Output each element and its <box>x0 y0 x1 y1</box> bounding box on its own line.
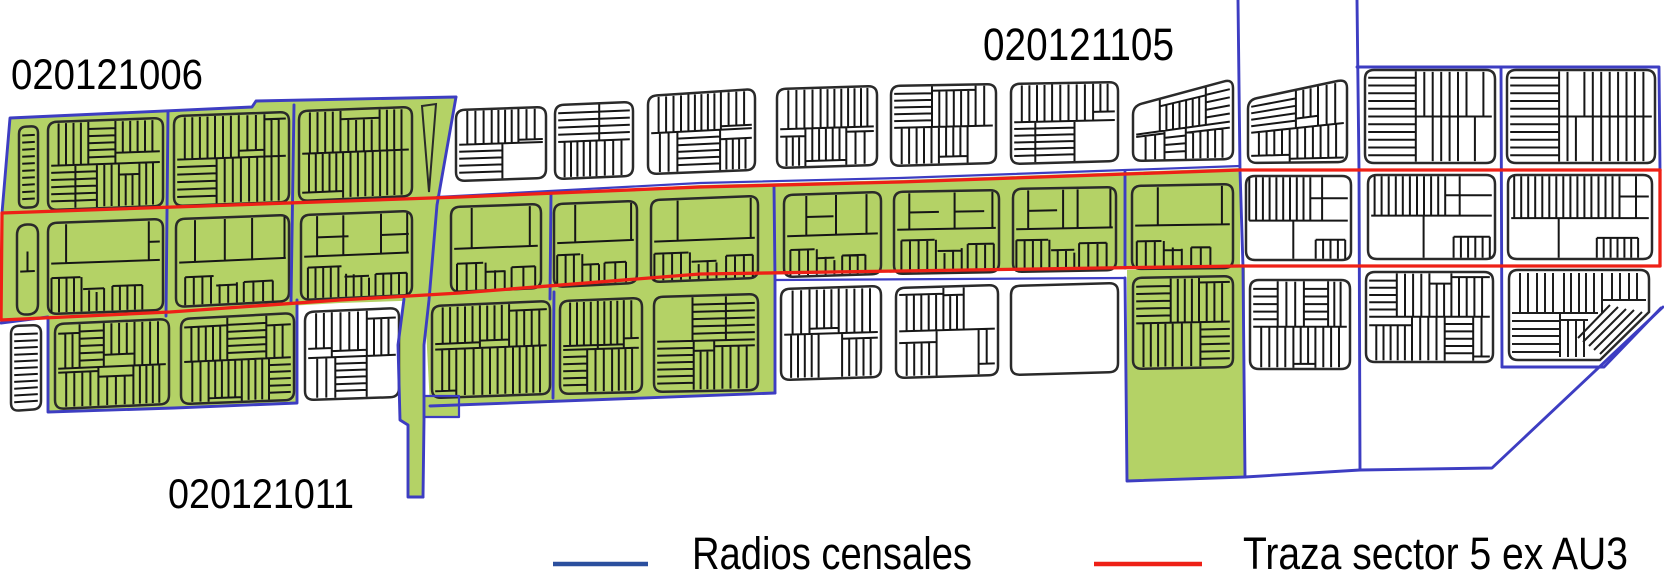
svg-text:020121105: 020121105 <box>983 19 1174 70</box>
svg-text:020121011: 020121011 <box>168 470 354 517</box>
svg-text:020121006: 020121006 <box>11 51 203 99</box>
svg-text:Radios censales: Radios censales <box>692 528 972 574</box>
svg-text:Traza sector 5 ex AU3: Traza sector 5 ex AU3 <box>1243 528 1628 574</box>
